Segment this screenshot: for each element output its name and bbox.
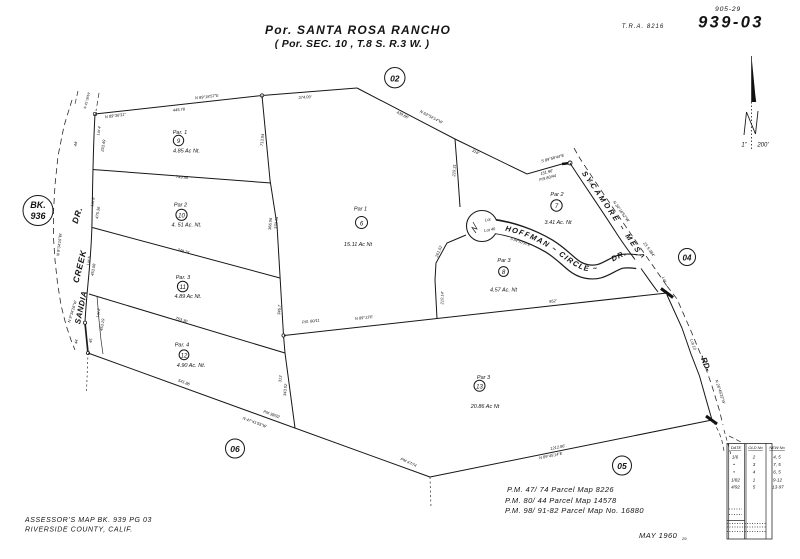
svg-text:13-97: 13-97 — [772, 485, 784, 490]
svg-text:6, 5: 6, 5 — [773, 470, 781, 475]
svg-text:NEW No: NEW No — [769, 445, 785, 450]
svg-text:P.M. 98/ 91-82 Parcel Map No: P.M. 98/ 91-82 Parcel Map No. 16880 — [505, 506, 644, 515]
svg-text:313: 313 — [277, 375, 283, 383]
svg-text:4.57 Ac. Nt: 4.57 Ac. Nt — [490, 288, 517, 294]
svg-text:4.90 Ac. Nt.: 4.90 Ac. Nt. — [177, 363, 206, 369]
svg-text:Par 2: Par 2 — [174, 203, 187, 209]
svg-text:P.M. 80/ 44 Parcel Map 1: P.M. 80/ 44 Parcel Map 14578 — [505, 496, 617, 505]
svg-text:10: 10 — [178, 213, 185, 219]
svg-text:( Por. SEC. 10 , T.8 S. R.3 W.: ( Por. SEC. 10 , T.8 S. R.3 W. ) — [275, 38, 430, 50]
svg-text:3.41 Ac. Nt: 3.41 Ac. Nt — [544, 220, 571, 226]
svg-text:02: 02 — [390, 74, 400, 84]
svg-text:Por. SANTA ROSA RANCHO: Por. SANTA ROSA RANCHO — [265, 23, 451, 37]
svg-text:20.86 Ac Nt: 20.86 Ac Nt — [470, 404, 500, 410]
svg-text:200’: 200’ — [756, 143, 769, 149]
svg-text:346.7: 346.7 — [276, 304, 282, 315]
svg-text:743.86: 743.86 — [176, 174, 189, 180]
svg-text:939-03: 939-03 — [698, 14, 764, 32]
svg-text:Par 1: Par 1 — [354, 207, 367, 213]
svg-text:9-12: 9-12 — [773, 478, 783, 483]
svg-text:210.14′: 210.14′ — [439, 291, 444, 305]
svg-text:4.89 Ac Nt.: 4.89 Ac Nt. — [174, 294, 201, 300]
svg-text:OLD No: OLD No — [748, 445, 763, 450]
svg-text:4, 5: 4, 5 — [773, 455, 781, 460]
svg-text:2: 2 — [752, 455, 756, 460]
svg-text:7, 5: 7, 5 — [773, 462, 781, 467]
svg-text:BK.: BK. — [30, 200, 46, 210]
svg-text:04: 04 — [683, 254, 692, 263]
svg-text:4/92: 4/92 — [731, 485, 740, 490]
svg-text:RIVERSIDE COUNTY, CALI: RIVERSIDE COUNTY, CALIF. — [25, 527, 133, 534]
svg-text:13: 13 — [476, 384, 483, 390]
svg-text:1/82: 1/82 — [731, 478, 740, 483]
svg-text:229.31: 229.31 — [451, 164, 457, 178]
svg-text:1/6: 1/6 — [732, 455, 739, 460]
svg-text:29: 29 — [681, 536, 687, 541]
svg-text:4.85 Ac Nt.: 4.85 Ac Nt. — [173, 149, 200, 155]
svg-text:05: 05 — [617, 461, 627, 471]
svg-text:11: 11 — [180, 285, 186, 291]
svg-text:Par 2: Par 2 — [550, 192, 563, 198]
svg-text:Par 3: Par 3 — [497, 258, 511, 264]
svg-text:ASSESSOR’S MAP BK. 939 PG: ASSESSOR’S MAP BK. 939 PG 03 — [24, 517, 152, 524]
svg-text:15.11 Ac Nt: 15.11 Ac Nt — [344, 242, 373, 248]
svg-text:936: 936 — [30, 211, 46, 221]
svg-text:MAY 1960: MAY 1960 — [639, 531, 678, 540]
svg-text:4. 51 Ac. Nt.: 4. 51 Ac. Nt. — [171, 223, 201, 229]
svg-text:Par. 4: Par. 4 — [175, 343, 189, 349]
svg-text:374.09′: 374.09′ — [298, 94, 312, 100]
svg-text:905-29: 905-29 — [715, 6, 741, 13]
svg-text:P.M. 47/ 74 Parcel Map 8: P.M. 47/ 74 Parcel Map 8226 — [507, 485, 614, 494]
svg-text:952′: 952′ — [549, 298, 557, 304]
svg-text:DATE: DATE — [731, 445, 742, 450]
svg-text:T.R.A. 8216: T.R.A. 8216 — [622, 24, 664, 30]
svg-text:12: 12 — [181, 353, 188, 359]
svg-text:Par. 3: Par. 3 — [176, 275, 191, 281]
svg-text:06: 06 — [230, 444, 240, 454]
